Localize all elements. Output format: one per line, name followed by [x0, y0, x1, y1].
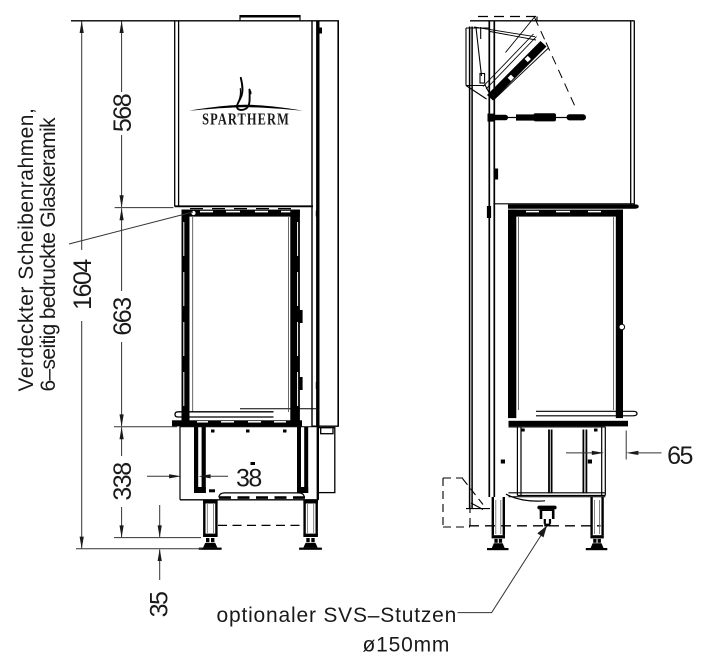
svg-text:ø150mm: ø150mm: [363, 634, 451, 657]
svg-text:35: 35: [146, 592, 174, 617]
svg-text:1604: 1604: [69, 259, 97, 310]
svg-text:Verdeckter Scheibenrahmen,: Verdeckter Scheibenrahmen,: [15, 108, 38, 392]
svg-text:38: 38: [236, 465, 261, 493]
svg-text:optionaler SVS–Stutzen: optionaler SVS–Stutzen: [217, 604, 458, 627]
svg-text:65: 65: [667, 442, 692, 470]
svg-text:338: 338: [109, 463, 137, 501]
svg-text:6–seitig bedruckte Glaskeram: 6–seitig bedruckte Glaskeramik: [37, 117, 60, 392]
svg-text:SPARTHERM: SPARTHERM: [202, 111, 290, 129]
svg-text:568: 568: [109, 94, 137, 132]
svg-text:663: 663: [109, 298, 137, 336]
